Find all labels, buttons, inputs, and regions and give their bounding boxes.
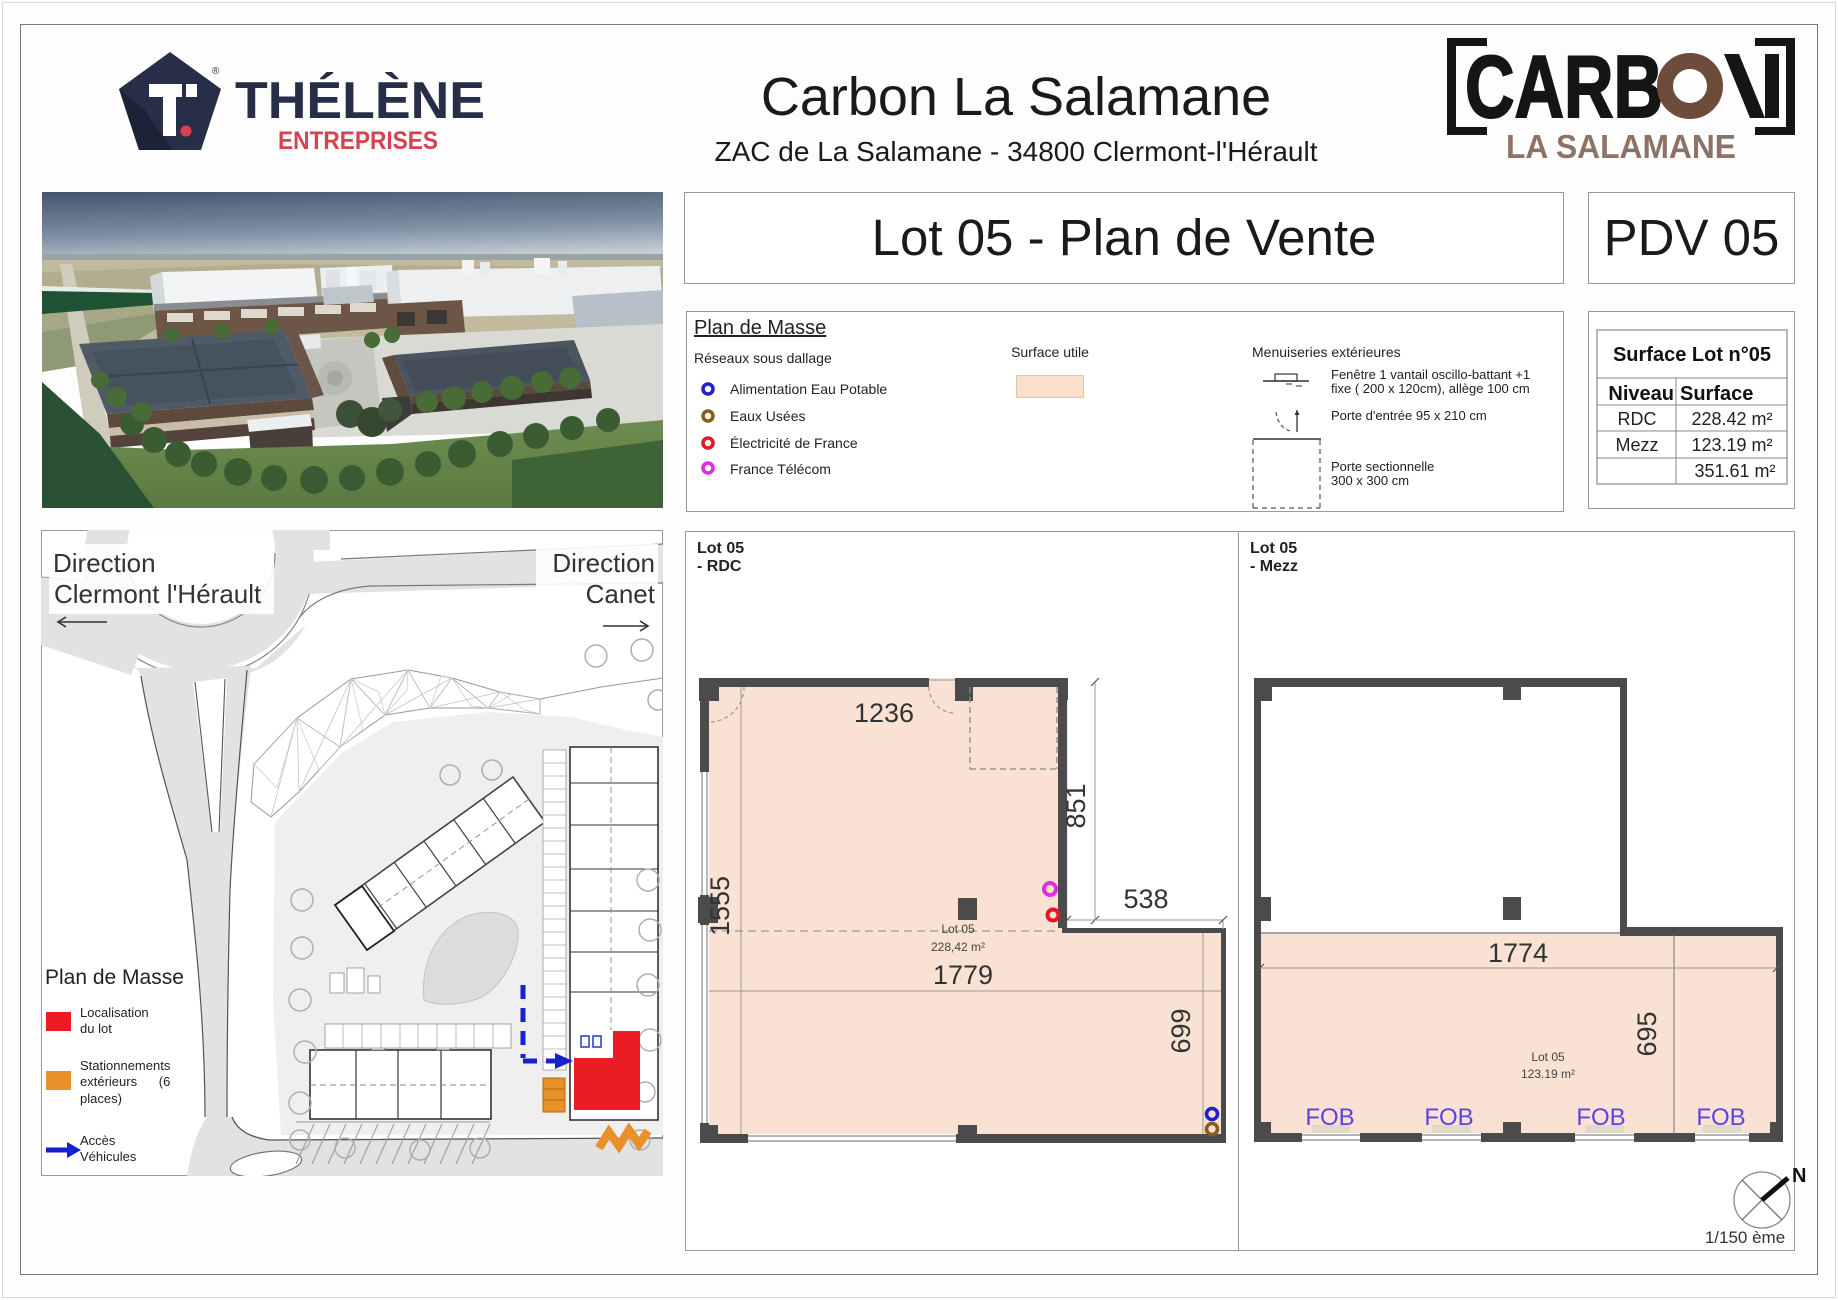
svg-text:THÉLÈNE: THÉLÈNE [235,72,485,130]
svg-text:Niveau: Niveau [1608,383,1674,405]
svg-text:123.19 m²: 123.19 m² [1521,1067,1575,1081]
svg-text:FOB: FOB [1305,1104,1354,1131]
svg-text:1774: 1774 [1488,938,1548,968]
svg-text:228.42 m²: 228.42 m² [1691,409,1772,429]
svg-text:RDC: RDC [1618,409,1657,429]
svg-text:228,42 m²: 228,42 m² [931,940,985,954]
svg-text:699: 699 [1166,1008,1196,1053]
svg-text:ENTREPRISES: ENTREPRISES [278,127,438,155]
svg-text:123.19 m²: 123.19 m² [1691,435,1772,455]
svg-text:FOB: FOB [1696,1104,1745,1131]
svg-text:Lot 05: Lot 05 [941,922,975,936]
svg-text:1555: 1555 [705,876,735,936]
svg-text:Mezz: Mezz [1615,435,1658,455]
svg-text:1236: 1236 [854,698,914,728]
svg-text:Direction: Direction [53,548,156,578]
svg-text:1779: 1779 [933,960,993,990]
svg-text:FOB: FOB [1424,1104,1473,1131]
svg-text:Clermont l'Hérault: Clermont l'Hérault [54,579,262,609]
svg-text:695: 695 [1632,1011,1662,1056]
svg-text:851: 851 [1061,783,1091,828]
svg-text:Surface Lot n°05: Surface Lot n°05 [1613,344,1771,366]
svg-text:351.61 m²: 351.61 m² [1694,461,1775,481]
svg-text:LA SALAMANE: LA SALAMANE [1506,128,1736,165]
svg-text:FOB: FOB [1576,1104,1625,1131]
svg-text:538: 538 [1123,884,1168,914]
svg-text:Lot 05: Lot 05 [1531,1050,1565,1064]
svg-text:Surface: Surface [1680,383,1753,405]
svg-text:N: N [1792,1165,1806,1187]
svg-text:CARB: CARB [1465,37,1663,136]
svg-text:®: ® [212,66,220,77]
svg-text:Direction: Direction [552,548,655,578]
svg-text:Canet: Canet [586,579,656,609]
